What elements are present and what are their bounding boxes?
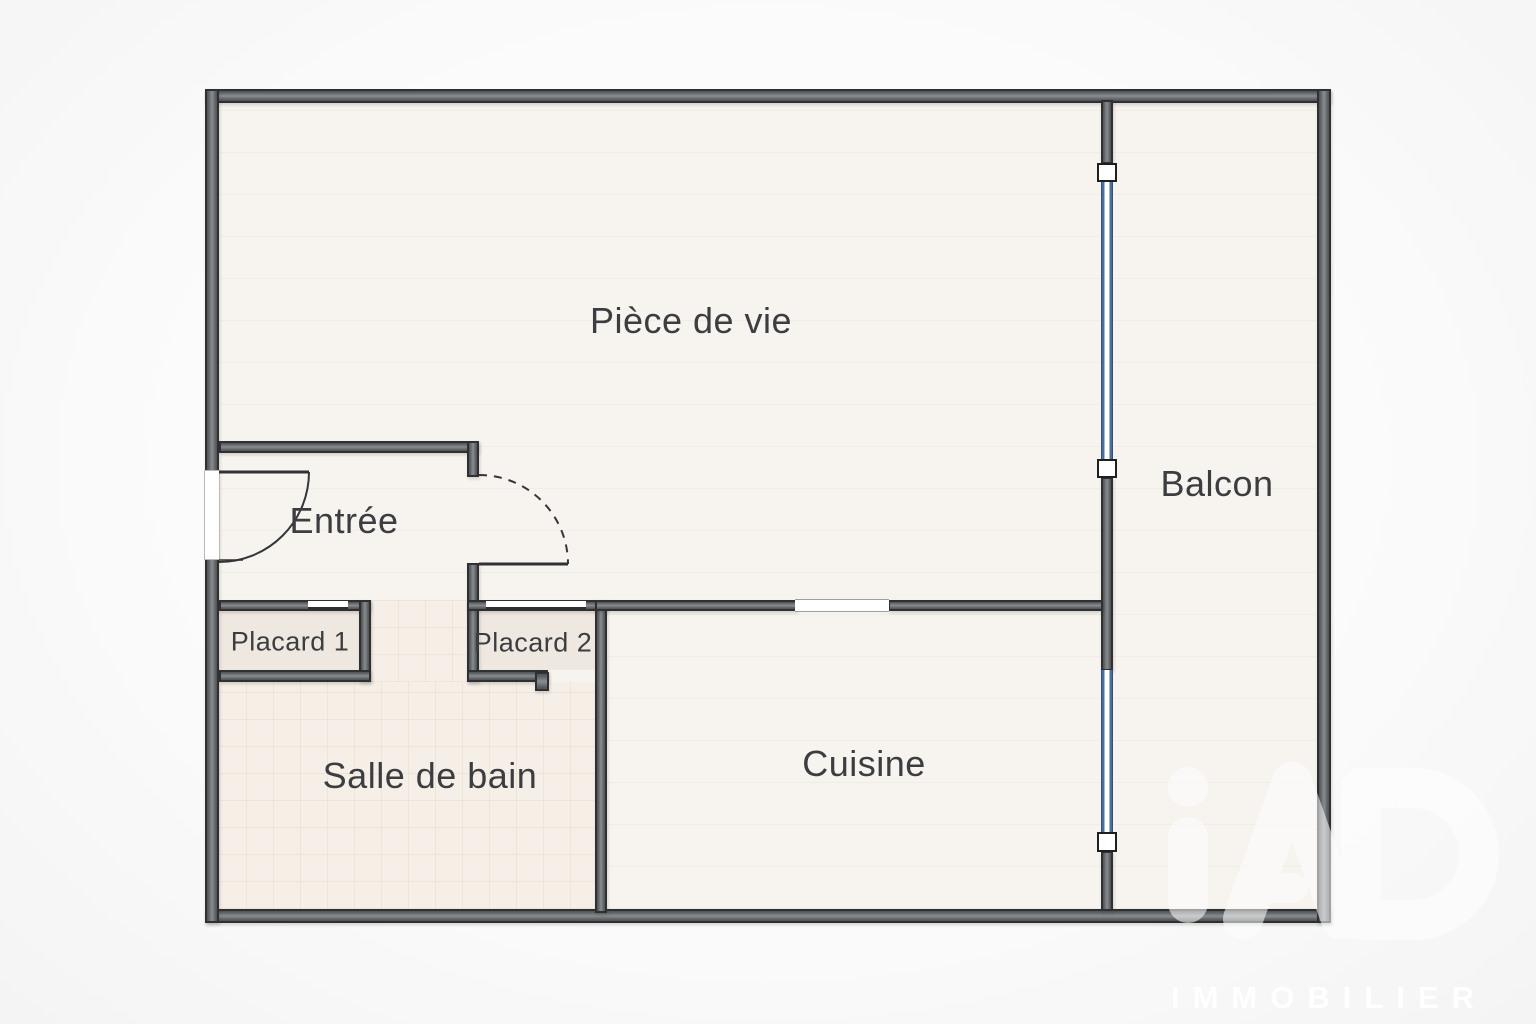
wall-placard2-bottom-step	[535, 672, 549, 691]
room-label-entree: Entrée	[289, 500, 398, 542]
wall-placard1-bottom	[219, 670, 371, 682]
wall-balcony-top-segment	[1101, 100, 1113, 164]
wall-outer-right	[1317, 89, 1331, 923]
wall-balcony-mid-segment	[1101, 477, 1113, 671]
wall-entree-right-lower	[467, 563, 479, 682]
hallway-floor	[371, 600, 467, 682]
wall-entree-right-upper	[467, 441, 479, 477]
room-label-placard-1: Placard 1	[231, 627, 350, 658]
wall-placard1-top	[219, 600, 371, 611]
room-label-salle-de-bain: Salle de bain	[323, 755, 538, 797]
room-label-piece-de-vie: Pièce de vie	[590, 300, 792, 342]
window-living-room-top-cap	[1097, 163, 1117, 182]
room-label-placard-2: Placard 2	[474, 628, 593, 659]
window-kitchen	[1101, 670, 1113, 833]
wall-outer-top	[205, 89, 1331, 103]
room-label-balcon: Balcon	[1160, 463, 1273, 505]
wall-kitchen-top-left-segment	[595, 600, 797, 611]
placard1-sliding-door	[308, 601, 348, 609]
wall-outer-bottom	[205, 909, 1331, 923]
placard2-sliding-door	[486, 601, 586, 609]
wall-entree-top	[219, 441, 479, 453]
wall-kitchen-left	[595, 600, 607, 913]
wall-kitchen-top-right-segment	[888, 600, 1103, 611]
wall-balcony-bottom-segment	[1101, 851, 1113, 911]
window-living-room-bottom-cap	[1097, 459, 1117, 478]
window-kitchen-bottom-cap	[1097, 832, 1117, 852]
floorplan-canvas: Pièce de vie Balcon Entrée Placard 1 Pla…	[0, 0, 1536, 1024]
kitchen-passage-opening	[795, 599, 889, 612]
entry-door-opening	[204, 470, 220, 560]
iad-watermark-subtitle: IMMOBILIER	[1171, 980, 1536, 1016]
room-label-cuisine: Cuisine	[802, 743, 926, 785]
iad-logo-letter-d	[1361, 788, 1479, 920]
window-living-room	[1101, 180, 1113, 462]
